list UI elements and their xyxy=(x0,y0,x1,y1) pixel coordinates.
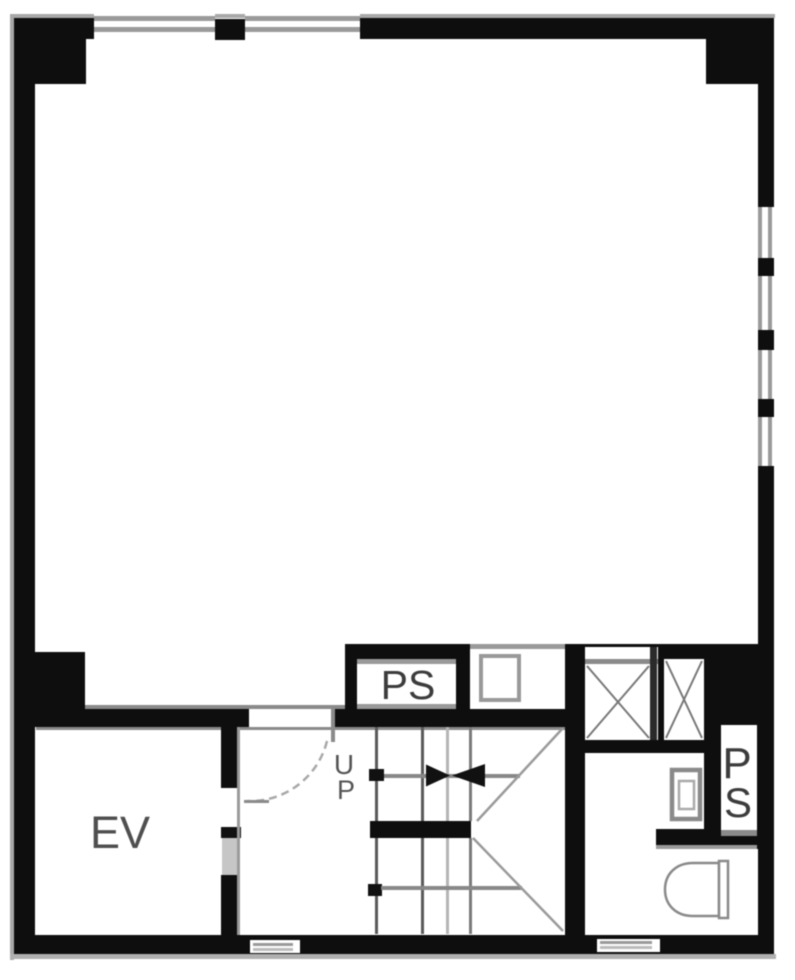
svg-text:S: S xyxy=(724,779,752,826)
svg-text:EV: EV xyxy=(90,807,150,858)
svg-text:PS: PS xyxy=(381,662,436,708)
svg-text:P: P xyxy=(337,775,355,805)
